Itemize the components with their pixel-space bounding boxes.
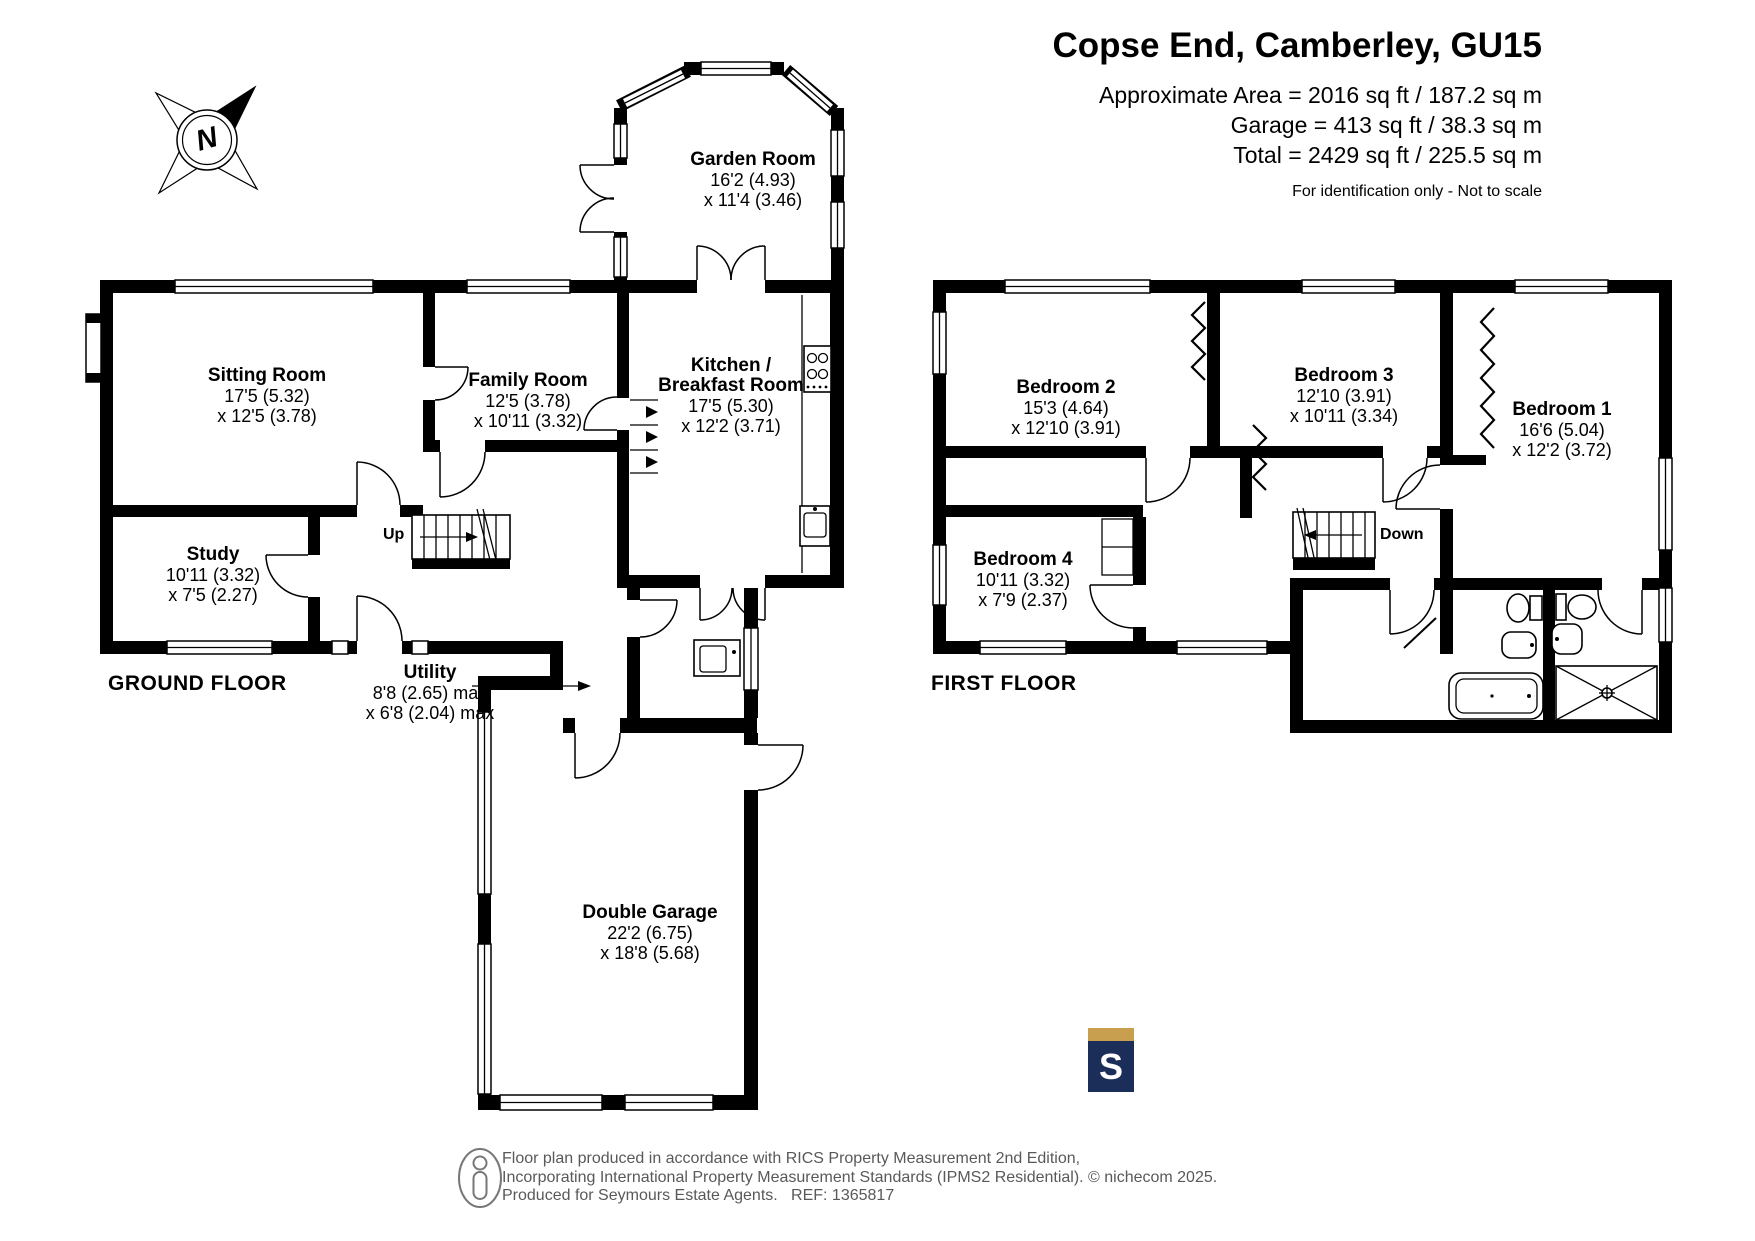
- footer-line-3: Produced for Seymours Estate Agents. REF…: [502, 1187, 1084, 1206]
- room-label-bedroom-3: Bedroom 3 12'10 (3.91) x 10'11 (3.34): [1290, 366, 1398, 426]
- person-icon: [459, 1149, 501, 1207]
- first-floor-plan: [933, 280, 1672, 733]
- room-label-double-garage: Double Garage 22'2 (6.75) x 18'8 (5.68): [582, 903, 717, 963]
- header: Copse End, Camberley, GU15 Approximate A…: [1052, 26, 1542, 201]
- footer-copyright: © nichecom 2025.: [1088, 1169, 1217, 1187]
- room-label-sitting-room: Sitting Room 17'5 (5.32) x 12'5 (3.78): [208, 366, 326, 426]
- area-line-garage: Garage = 413 sq ft / 38.3 sq m: [1052, 110, 1542, 140]
- room-label-utility: Utility 8'8 (2.65) max x 6'8 (2.04) max: [366, 663, 495, 723]
- room-label-bedroom-4: Bedroom 4 10'11 (3.32) x 7'9 (2.37): [973, 550, 1072, 610]
- room-label-bedroom-2: Bedroom 2 15'3 (4.64) x 12'10 (3.91): [1011, 378, 1121, 438]
- page-root: { "header": { "title": "Copse End, Cambe…: [0, 0, 1755, 1241]
- stairs-label-up: Up: [383, 526, 404, 544]
- floor-label-first: FIRST FLOOR: [931, 672, 1077, 696]
- room-label-kitchen-breakfast-room: Kitchen / Breakfast Room 17'5 (5.30) x 1…: [658, 356, 804, 436]
- room-label-family-room: Family Room 12'5 (3.78) x 10'11 (3.32): [468, 371, 587, 431]
- footer-line-2: Incorporating International Property Mea…: [502, 1169, 1084, 1188]
- area-line-total: Total = 2429 sq ft / 225.5 sq m: [1052, 140, 1542, 170]
- room-label-garden-room: Garden Room 16'2 (4.93) x 11'4 (3.46): [690, 150, 816, 210]
- agent-logo: S: [1088, 1028, 1134, 1092]
- floor-label-ground: GROUND FLOOR: [108, 672, 287, 696]
- agent-logo-letter: S: [1088, 1041, 1134, 1092]
- room-label-study: Study 10'11 (3.32) x 7'5 (2.27): [166, 545, 260, 605]
- room-label-bedroom-1: Bedroom 1 16'6 (5.04) x 12'2 (3.72): [1512, 400, 1612, 460]
- page-title: Copse End, Camberley, GU15: [1052, 26, 1542, 66]
- agent-logo-gold-band: [1088, 1028, 1134, 1041]
- disclaimer-text: For identification only - Not to scale: [1052, 183, 1542, 201]
- stairs-label-down: Down: [1380, 526, 1424, 544]
- footer-line-1: Floor plan produced in accordance with R…: [502, 1150, 1084, 1169]
- footer-disclaimer: Floor plan produced in accordance with R…: [502, 1150, 1084, 1206]
- area-line-approximate: Approximate Area = 2016 sq ft / 187.2 sq…: [1052, 80, 1542, 110]
